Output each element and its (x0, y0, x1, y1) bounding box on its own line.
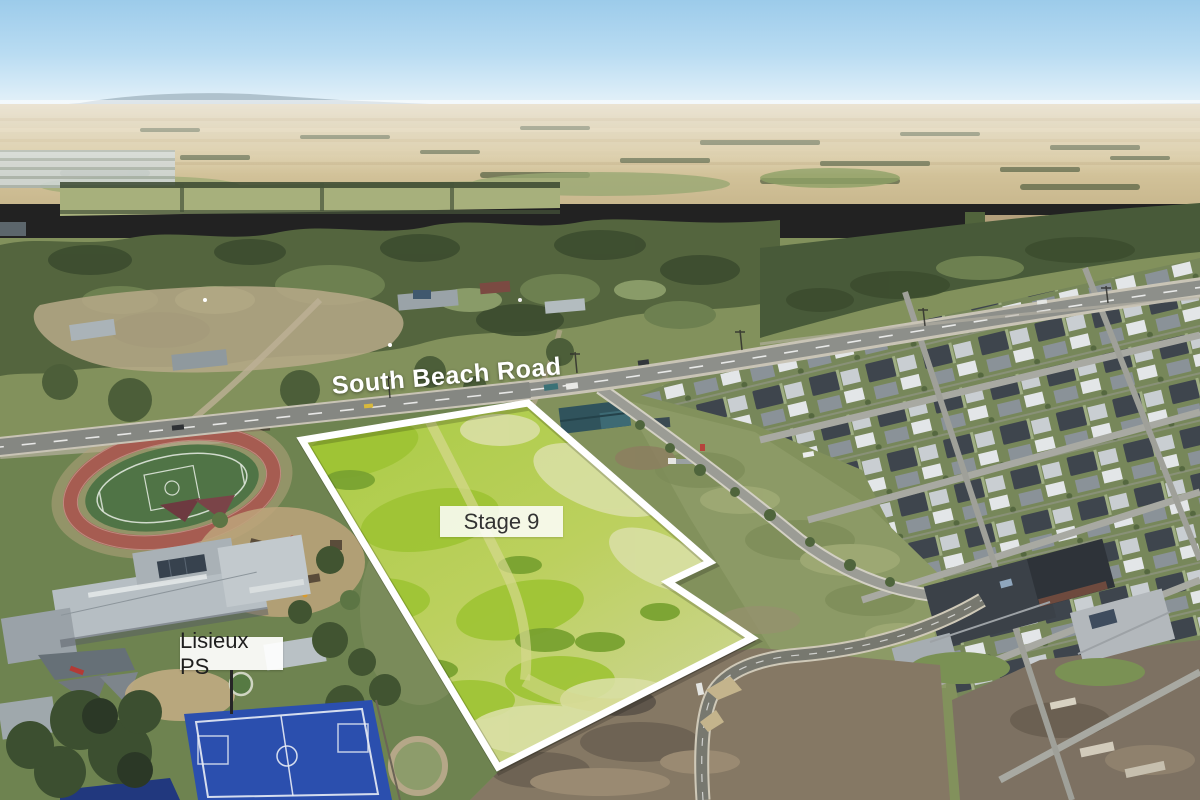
aerial-photo: South Beach Road Stage 9 Lisieux PS (0, 0, 1200, 800)
water-tank (391, 739, 445, 793)
hedged-field (60, 180, 560, 216)
stage-label: Stage 9 (440, 506, 563, 537)
far-shed (0, 222, 26, 236)
horizon-haze (0, 100, 1200, 175)
school-label: Lisieux PS (180, 637, 283, 670)
school-label-leader-line (230, 670, 233, 714)
stage-label-text: Stage 9 (464, 509, 540, 535)
basketball-court (184, 700, 392, 800)
aerial-scene (0, 0, 1200, 800)
